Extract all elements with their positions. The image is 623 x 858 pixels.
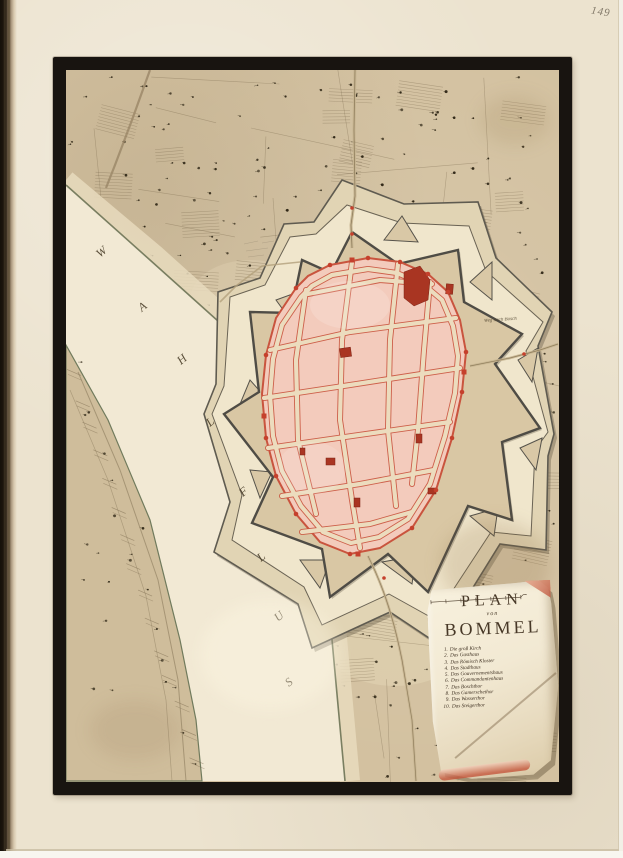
- cartouche-title-2: BOMMEL: [438, 616, 549, 641]
- map-canvas: W A H L F L U S Weg nach Bosch: [66, 70, 559, 782]
- atlas-page: 149: [0, 0, 623, 858]
- map-frame: W A H L F L U S Weg nach Bosch: [53, 57, 572, 795]
- dike-road: [106, 70, 150, 188]
- pencil-notes: [244, 241, 274, 257]
- cartouche-legend: 1.Die groß Kirch 2.Das Gasthaus 3.Das Rö…: [439, 643, 551, 710]
- backdrop-right: [619, 0, 623, 851]
- page-number: 149: [590, 5, 611, 20]
- gate-west: [262, 414, 267, 419]
- gate-east: [462, 370, 467, 375]
- map-cartouche: PLAN von BOMMEL 1.Die groß Kirch 2.Das G…: [426, 580, 559, 781]
- gate-south: [356, 552, 361, 557]
- book-binding: [0, 0, 17, 858]
- cartouche-content: PLAN von BOMMEL 1.Die groß Kirch 2.Das G…: [426, 580, 559, 781]
- block-highlight: [310, 281, 390, 329]
- gate-north: [350, 258, 355, 263]
- block-highlight-2: [278, 442, 346, 494]
- backdrop-bottom: [0, 851, 623, 858]
